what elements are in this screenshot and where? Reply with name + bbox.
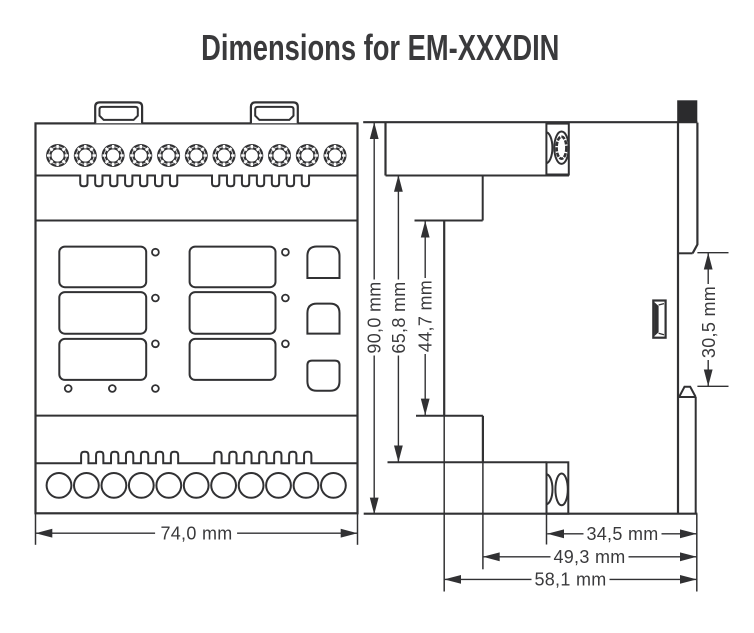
svg-text:58,1 mm: 58,1 mm [534,570,606,590]
svg-text:74,0 mm: 74,0 mm [160,524,232,544]
svg-text:30,5 mm: 30,5 mm [699,286,719,358]
svg-text:65,8 mm: 65,8 mm [389,281,409,353]
svg-text:34,5 mm: 34,5 mm [586,524,658,544]
svg-text:44,7 mm: 44,7 mm [416,280,436,352]
svg-text:49,3 mm: 49,3 mm [553,547,625,567]
svg-text:90,0 mm: 90,0 mm [365,281,385,353]
svg-text:Dimensions for EM-XXXDIN: Dimensions for EM-XXXDIN [201,27,559,68]
